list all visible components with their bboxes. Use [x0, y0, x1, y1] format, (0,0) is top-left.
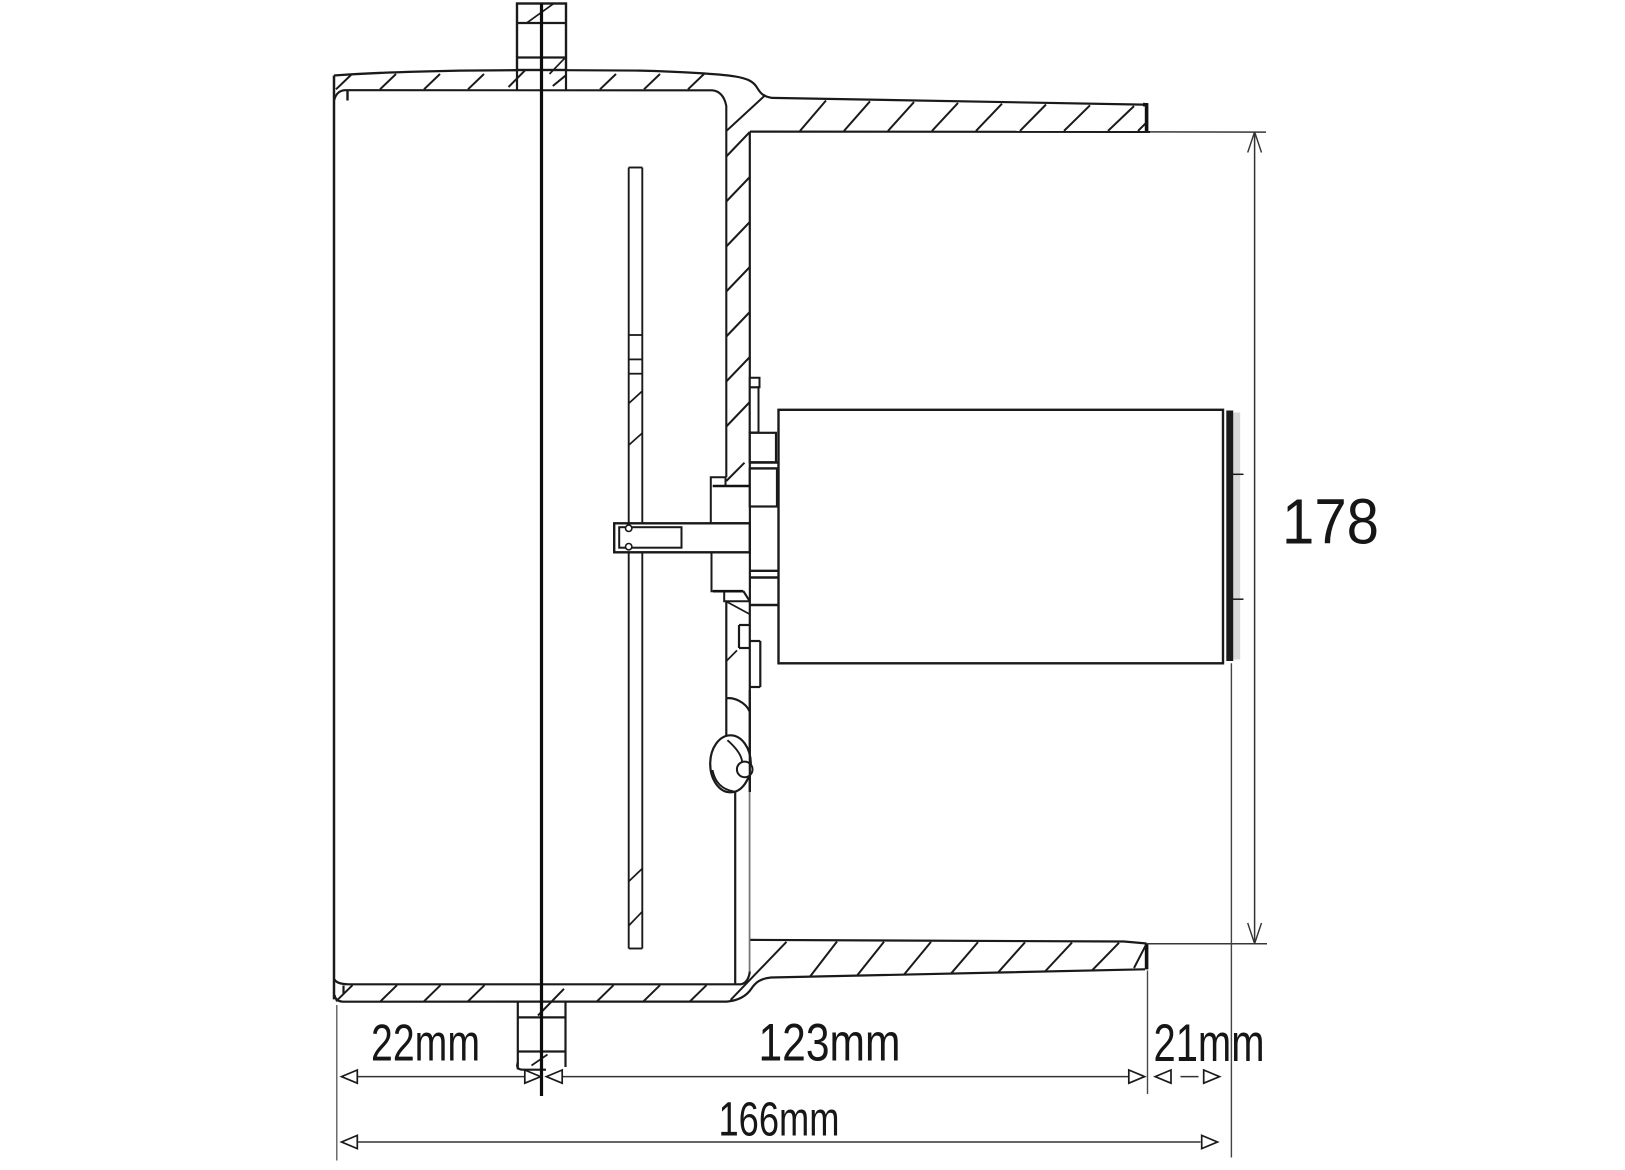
svg-text:22mm: 22mm [371, 1015, 480, 1073]
svg-text:123mm: 123mm [759, 1014, 901, 1073]
svg-text:178: 178 [1282, 486, 1379, 558]
svg-text:21mm: 21mm [1154, 1014, 1265, 1073]
svg-text:166mm: 166mm [719, 1094, 840, 1147]
